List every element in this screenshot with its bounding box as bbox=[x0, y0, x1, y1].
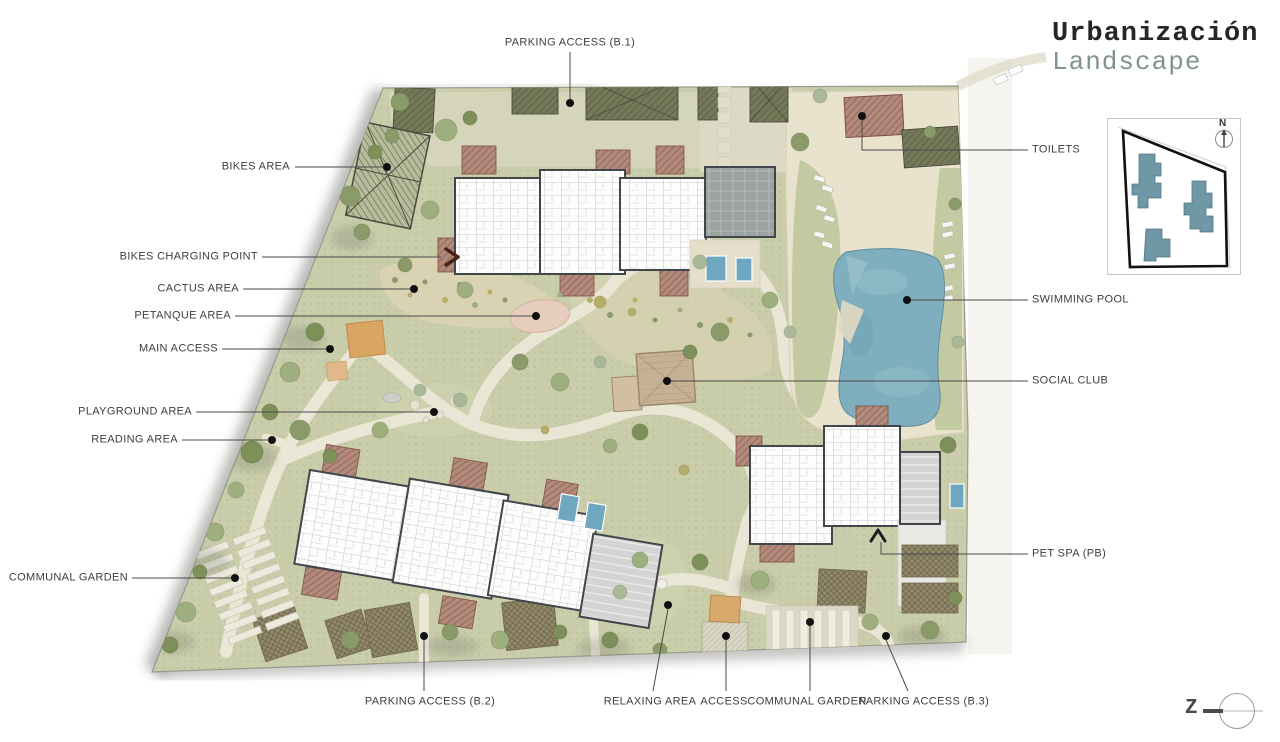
callout-reading-area: READING AREA bbox=[91, 434, 178, 447]
callout-main-access: MAIN ACCESS bbox=[139, 343, 218, 356]
callout-parking-access-b3: PARKING ACCESS (B.3) bbox=[859, 696, 989, 709]
firm-logo: Z bbox=[1185, 688, 1265, 736]
site-plan-sheet: PARKING ACCESS (B.1) BIKES AREA BIKES CH… bbox=[0, 0, 1280, 742]
sheet-subtitle: Landscape bbox=[1052, 48, 1258, 77]
callout-social-club: SOCIAL CLUB bbox=[1032, 375, 1108, 388]
project-title: Urbanización bbox=[1052, 20, 1258, 48]
north-arrow-icon bbox=[1216, 129, 1233, 148]
north-label: N bbox=[1219, 118, 1226, 129]
callout-bikes-charging-point: BIKES CHARGING POINT bbox=[120, 251, 258, 264]
callout-access: ACCESS bbox=[700, 696, 747, 709]
callout-parking-access-b1: PARKING ACCESS (B.1) bbox=[505, 37, 635, 50]
callout-swimming-pool: SWIMMING POOL bbox=[1032, 294, 1129, 307]
callout-toilets: TOILETS bbox=[1032, 144, 1080, 157]
callout-communal-garden-left: COMMUNAL GARDEN bbox=[9, 572, 128, 585]
callout-communal-garden-right: COMMUNAL GARDEN bbox=[747, 696, 866, 709]
pet-spa-area bbox=[902, 545, 958, 577]
key-map-buildings bbox=[1132, 154, 1213, 261]
callout-bikes-area: BIKES AREA bbox=[222, 161, 290, 174]
callout-petanque-area: PETANQUE AREA bbox=[134, 310, 231, 323]
key-map: N bbox=[1107, 118, 1241, 275]
callout-cactus-area: CACTUS AREA bbox=[158, 283, 239, 296]
callout-playground-area: PLAYGROUND AREA bbox=[78, 406, 192, 419]
logo-circle-icon bbox=[1203, 694, 1263, 729]
callout-parking-access-b2: PARKING ACCESS (B.2) bbox=[365, 696, 495, 709]
callout-relaxing-area: RELAXING AREA bbox=[604, 696, 697, 709]
callout-pet-spa: PET SPA (PB) bbox=[1032, 548, 1106, 561]
building-b1 bbox=[438, 146, 775, 296]
sheet-title: Urbanización Landscape bbox=[1052, 20, 1258, 77]
site-plan-drawing bbox=[0, 0, 1280, 742]
